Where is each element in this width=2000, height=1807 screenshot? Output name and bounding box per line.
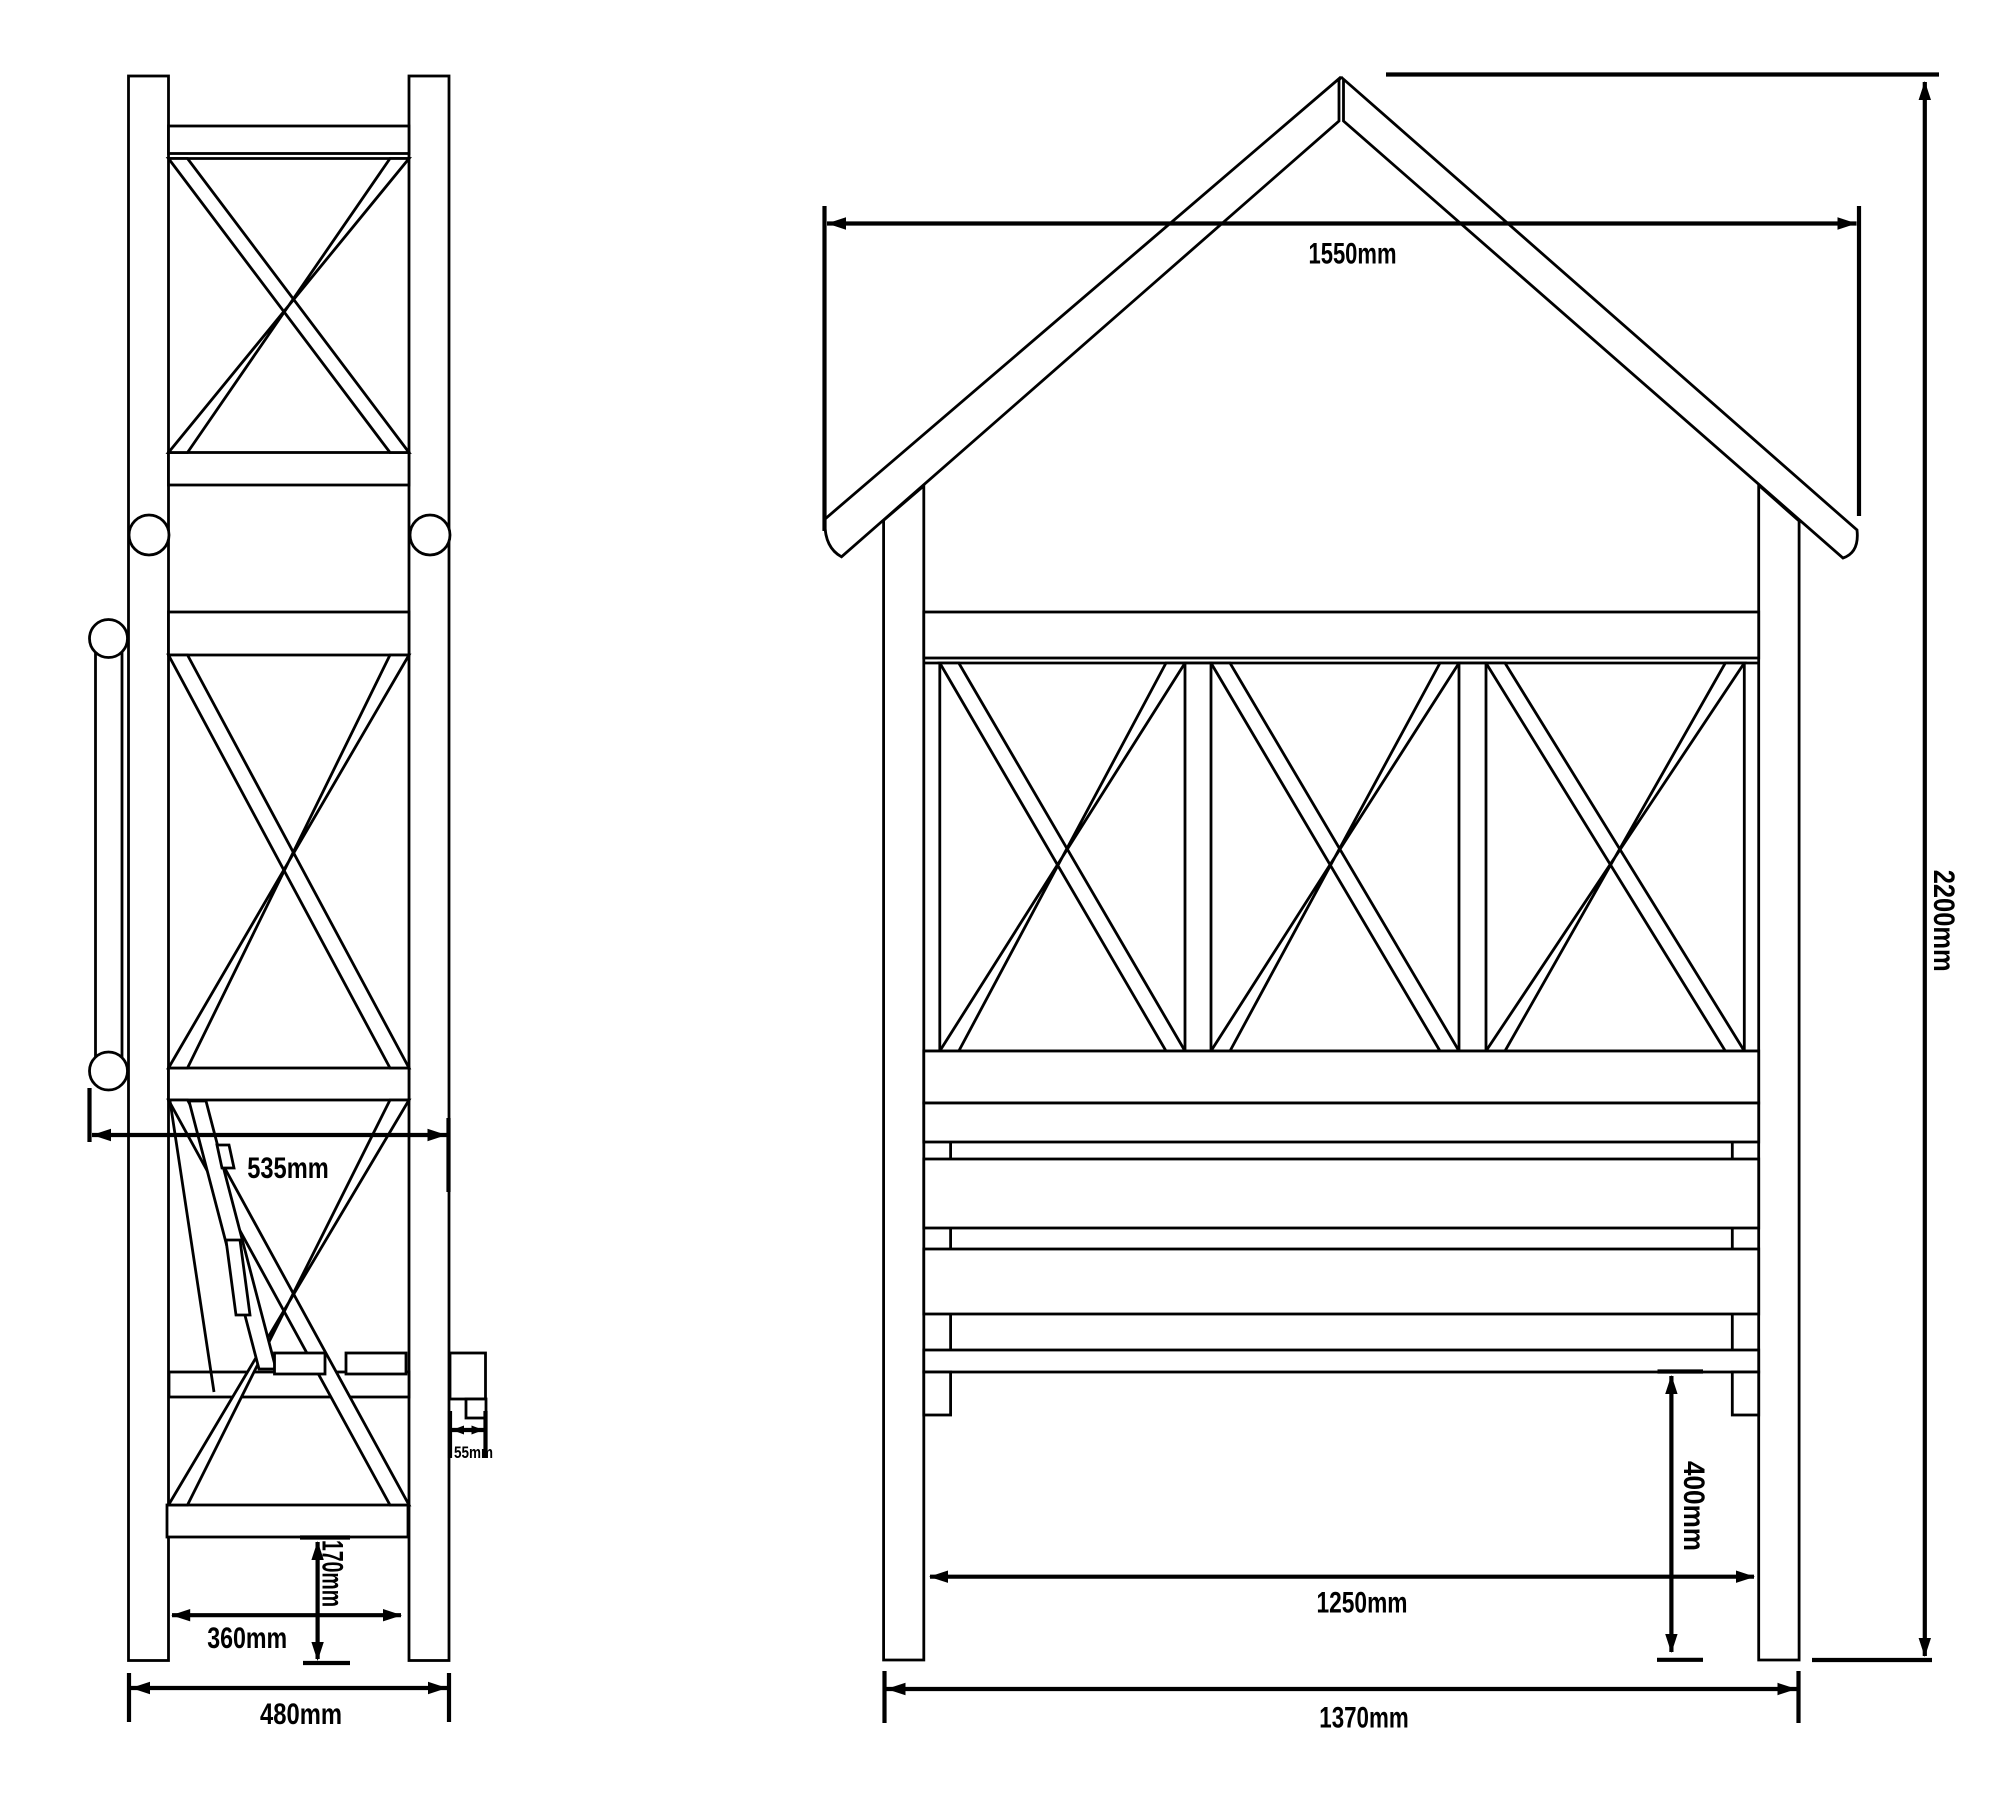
svg-text:360mm: 360mm [207, 1622, 287, 1655]
svg-text:55mm: 55mm [454, 1443, 493, 1462]
svg-text:1370mm: 1370mm [1319, 1702, 1408, 1735]
svg-text:480mm: 480mm [260, 1698, 342, 1731]
svg-text:2200mm: 2200mm [1927, 870, 1960, 972]
svg-text:1550mm: 1550mm [1309, 238, 1397, 271]
svg-text:1250mm: 1250mm [1317, 1587, 1408, 1620]
svg-text:535mm: 535mm [247, 1152, 329, 1185]
svg-text:400mm: 400mm [1677, 1461, 1710, 1551]
svg-text:170mm: 170mm [316, 1540, 349, 1607]
